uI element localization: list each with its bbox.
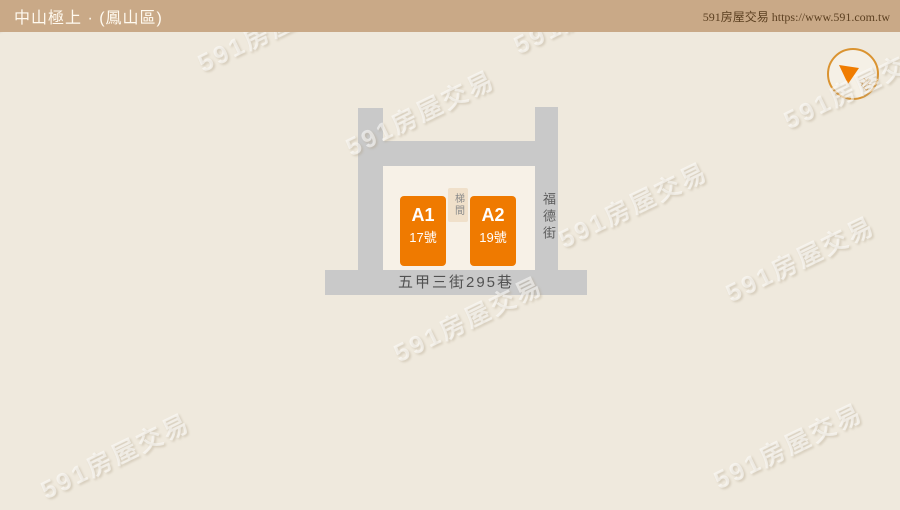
street-label-fude: 福德街	[535, 167, 558, 267]
building-a2[interactable]: A2 19號	[470, 196, 516, 266]
watermark-text: 591房屋交易	[552, 152, 714, 256]
building-a1-label: A1	[411, 205, 434, 225]
site-plan-map: 福德街 五甲三街295巷 A1 17號 梯間 A2 19號 北 591房屋交易5…	[0, 0, 900, 510]
street-label-wujia295: 五甲三街295巷	[325, 270, 587, 295]
compass: 北	[827, 48, 879, 100]
watermark-text: 591房屋交易	[719, 206, 881, 310]
building-a2-number: 19號	[479, 230, 506, 246]
watermark-text: 591房屋交易	[34, 403, 196, 507]
north-arrow-icon	[829, 50, 877, 98]
site-credit: 591房屋交易 https://www.591.com.tw	[703, 8, 890, 25]
header-bar: 中山極上 · (鳳山區) 591房屋交易 https://www.591.com…	[0, 0, 900, 32]
road-top-horizontal	[383, 141, 535, 166]
stairwell-box: 梯間	[448, 188, 468, 222]
building-a2-label: A2	[481, 205, 504, 225]
building-a1-number: 17號	[409, 230, 436, 246]
building-a1[interactable]: A1 17號	[400, 196, 446, 266]
watermark-text: 591房屋交易	[707, 393, 869, 497]
page-title: 中山極上 · (鳳山區)	[14, 4, 163, 28]
road-left-vertical	[358, 108, 383, 270]
